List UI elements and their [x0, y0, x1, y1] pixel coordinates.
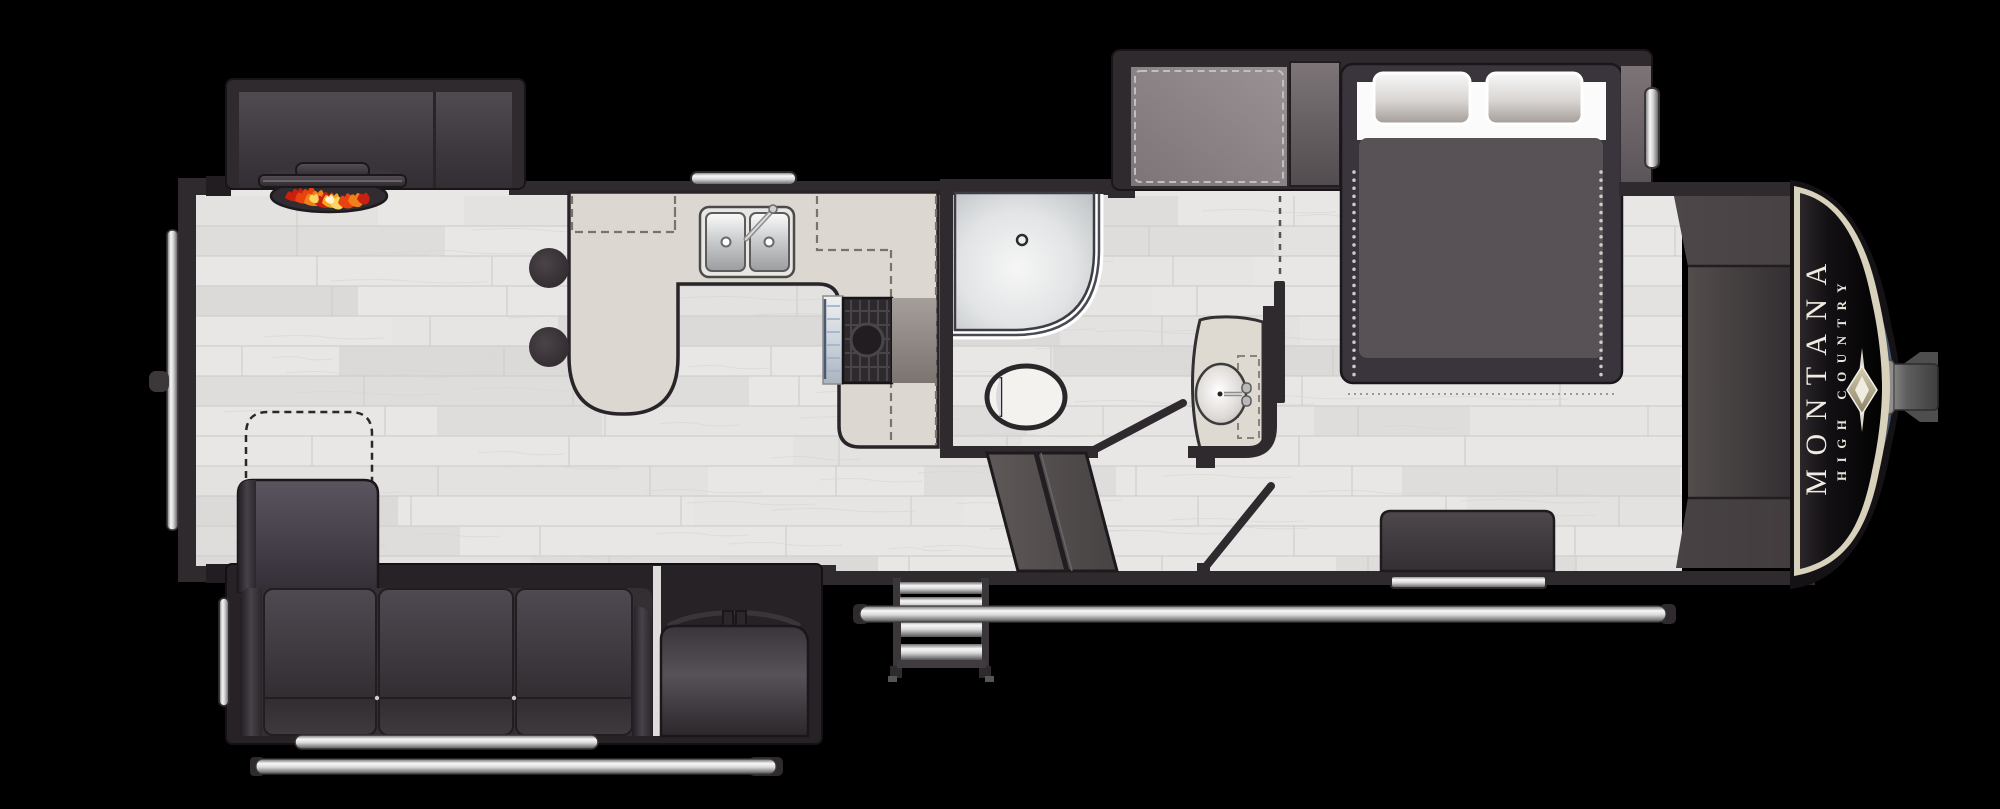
svg-text:MONTANA: MONTANA [1800, 250, 1833, 495]
svg-text:HIGH COUNTRY: HIGH COUNTRY [1834, 275, 1849, 481]
